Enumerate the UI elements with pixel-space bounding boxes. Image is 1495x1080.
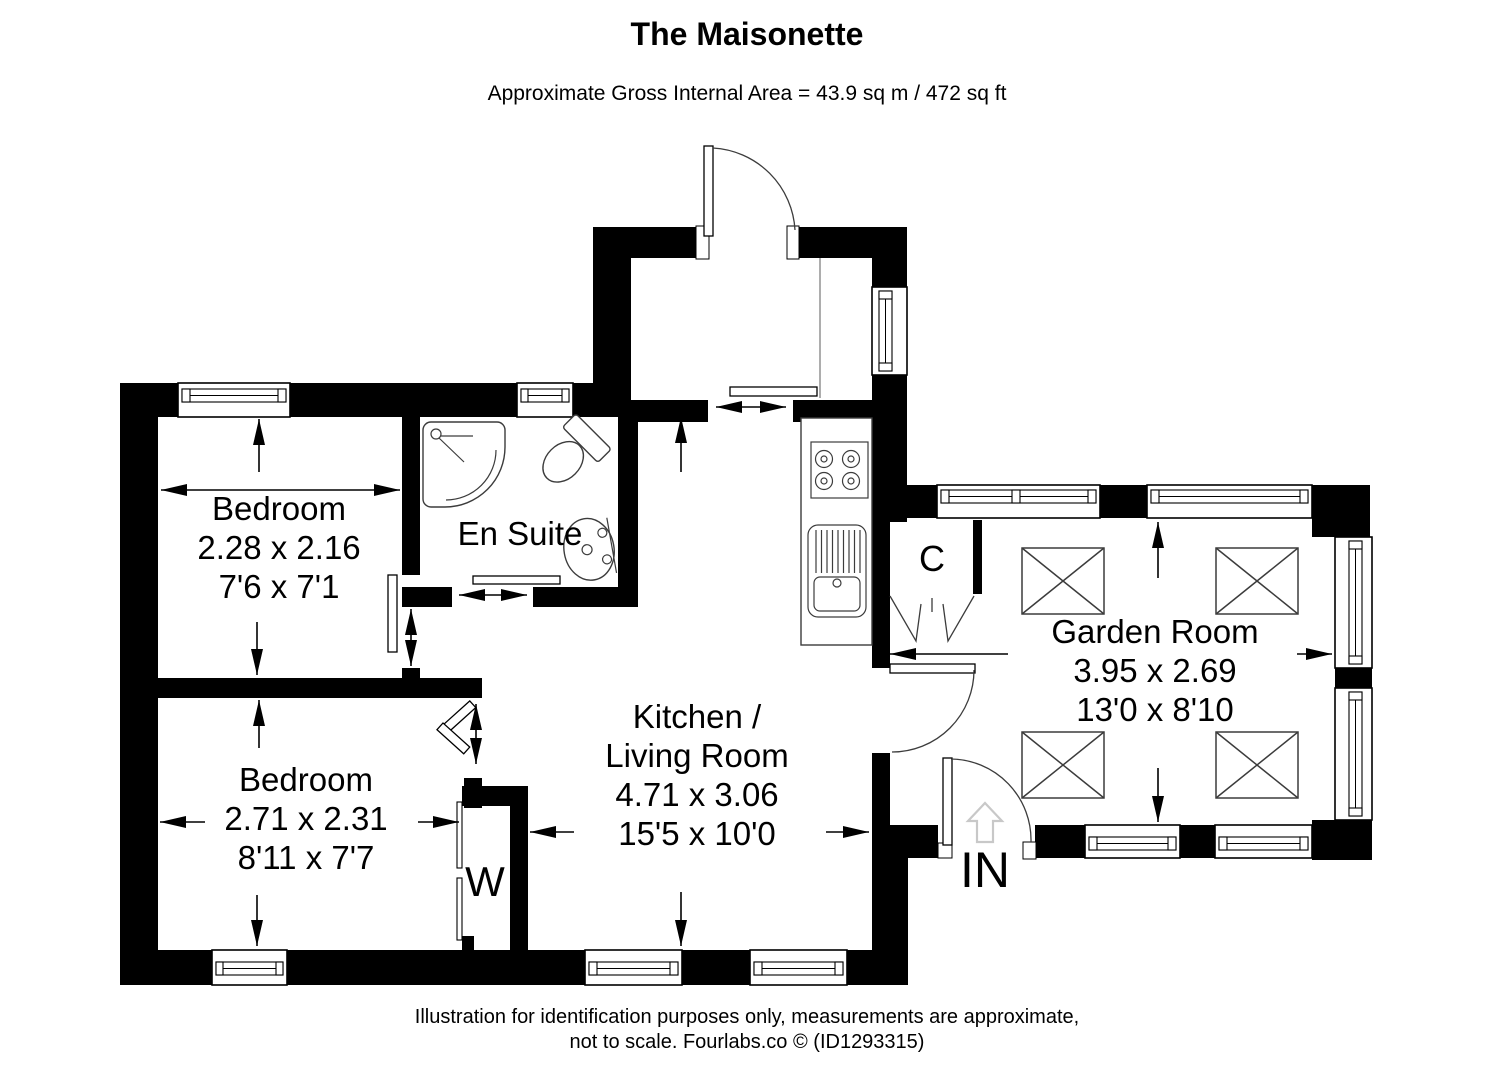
window-garden-right-lower [1335,688,1372,820]
window-garden-bottom-left [1085,825,1180,858]
footer-disclaimer-line2: not to scale. Fourlabs.co © (ID1293315) [570,1030,925,1055]
skylight-icon [1022,732,1104,798]
room-name: Living Room [605,736,788,775]
room-name: Kitchen / [605,697,788,736]
skylight-icon [1022,548,1104,614]
room-dim-imperial: 7'6 x 7'1 [197,567,360,606]
kitchen-counter [801,418,872,645]
room-dim-metric: 2.28 x 2.16 [197,528,360,567]
wardrobe-label: W [465,858,505,906]
window-bedroom2-bottom [212,950,287,985]
room-name: Bedroom [224,760,387,799]
window-garden-top-left [937,485,1100,518]
window-bedroom1-top [178,383,290,417]
window-garden-right-upper [1335,537,1372,668]
room-label-ensuite: En Suite [458,514,583,553]
room-dim-metric: 3.95 x 2.69 [1051,651,1258,690]
room-label-bedroom1: Bedroom 2.28 x 2.16 7'6 x 7'1 [197,489,360,606]
footer-disclaimer-line1: Illustration for identification purposes… [415,1005,1079,1030]
window-hall-right [872,287,907,375]
entrance-label: IN [960,841,1010,899]
page-subtitle: Approximate Gross Internal Area = 43.9 s… [488,82,1007,106]
cupboard-label: C [919,538,945,580]
skylight-icon [1216,548,1298,614]
room-dim-imperial: 8'11 x 7'7 [224,838,387,877]
room-label-bedroom2: Bedroom 2.71 x 2.31 8'11 x 7'7 [224,760,387,877]
skylight-icon [1216,732,1298,798]
page-title: The Maisonette [631,16,864,53]
entrance-door-top [696,146,799,259]
cupboard-bifold-doors [890,596,974,641]
room-label-kitchen-living: Kitchen / Living Room 4.71 x 3.06 15'5 x… [605,697,788,853]
kitchen-garden-door [890,664,975,752]
room-dim-imperial: 15'5 x 10'0 [605,814,788,853]
entry-direction-arrow-icon [968,803,1002,842]
room-label-garden-room: Garden Room 3.95 x 2.69 13'0 x 8'10 [1051,612,1258,729]
room-dim-metric: 2.71 x 2.31 [224,799,387,838]
room-dim-imperial: 13'0 x 8'10 [1051,690,1258,729]
window-ensuite-top [517,383,573,417]
room-name: Bedroom [197,489,360,528]
window-garden-top-right [1147,485,1312,518]
room-name: En Suite [458,514,583,553]
window-kitchen-bottom-right [750,950,847,985]
bedroom2-folding-door [437,701,476,764]
toilet-icon [529,414,611,496]
window-kitchen-bottom-left [585,950,682,985]
window-garden-bottom-right [1215,825,1312,858]
shower-icon [423,422,505,507]
floorplan-page: The Maisonette Approximate Gross Interna… [0,0,1495,1080]
room-dim-metric: 4.71 x 3.06 [605,775,788,814]
room-name: Garden Room [1051,612,1258,651]
